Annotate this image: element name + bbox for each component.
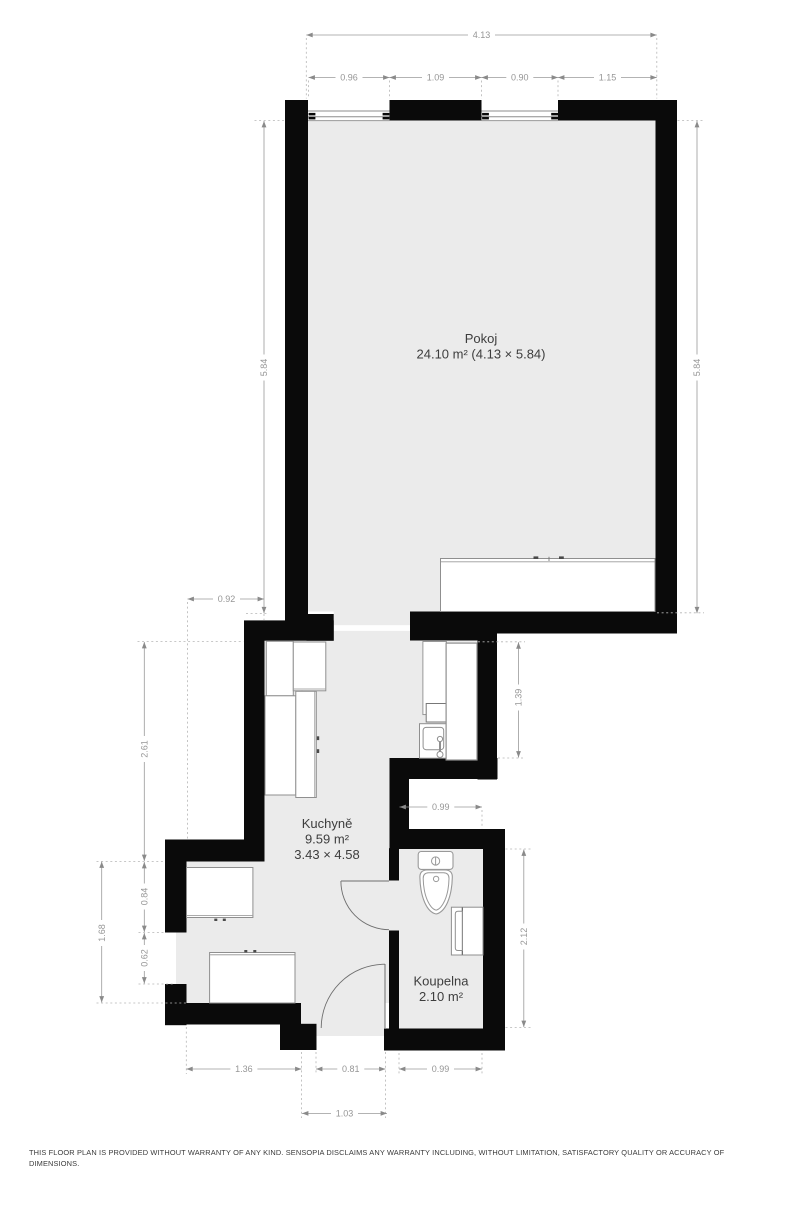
svg-text:DIMENSIONS.: DIMENSIONS. — [29, 1159, 79, 1168]
svg-text:0.99: 0.99 — [432, 802, 450, 812]
svg-text:0.81: 0.81 — [342, 1064, 360, 1074]
svg-text:5.84: 5.84 — [692, 359, 702, 377]
svg-text:2.10 m²: 2.10 m² — [419, 989, 464, 1004]
svg-text:1.09: 1.09 — [427, 73, 445, 83]
svg-text:1.39: 1.39 — [514, 689, 524, 707]
svg-text:3.43 × 4.58: 3.43 × 4.58 — [294, 847, 359, 862]
svg-text:5.84: 5.84 — [259, 359, 269, 377]
svg-text:0.84: 0.84 — [140, 888, 150, 906]
svg-text:Pokoj: Pokoj — [465, 331, 498, 346]
svg-text:1.68: 1.68 — [97, 924, 107, 942]
svg-text:24.10 m² (4.13 × 5.84): 24.10 m² (4.13 × 5.84) — [417, 347, 546, 362]
svg-text:Koupelna: Koupelna — [414, 974, 470, 989]
svg-text:1.36: 1.36 — [235, 1064, 253, 1074]
svg-text:9.59 m²: 9.59 m² — [305, 832, 350, 847]
svg-text:0.90: 0.90 — [511, 73, 529, 83]
svg-text:4.13: 4.13 — [473, 30, 491, 40]
svg-text:2.12: 2.12 — [519, 928, 529, 946]
svg-text:Kuchyně: Kuchyně — [302, 816, 353, 831]
svg-text:0.96: 0.96 — [340, 73, 358, 83]
svg-text:0.92: 0.92 — [218, 594, 236, 604]
svg-text:1.03: 1.03 — [336, 1109, 354, 1119]
svg-text:0.62: 0.62 — [140, 949, 150, 967]
svg-text:1.15: 1.15 — [599, 73, 617, 83]
svg-text:0.99: 0.99 — [432, 1064, 450, 1074]
svg-text:2.61: 2.61 — [140, 740, 150, 758]
svg-text:THIS FLOOR PLAN IS PROVIDED WI: THIS FLOOR PLAN IS PROVIDED WITHOUT WARR… — [29, 1148, 725, 1157]
